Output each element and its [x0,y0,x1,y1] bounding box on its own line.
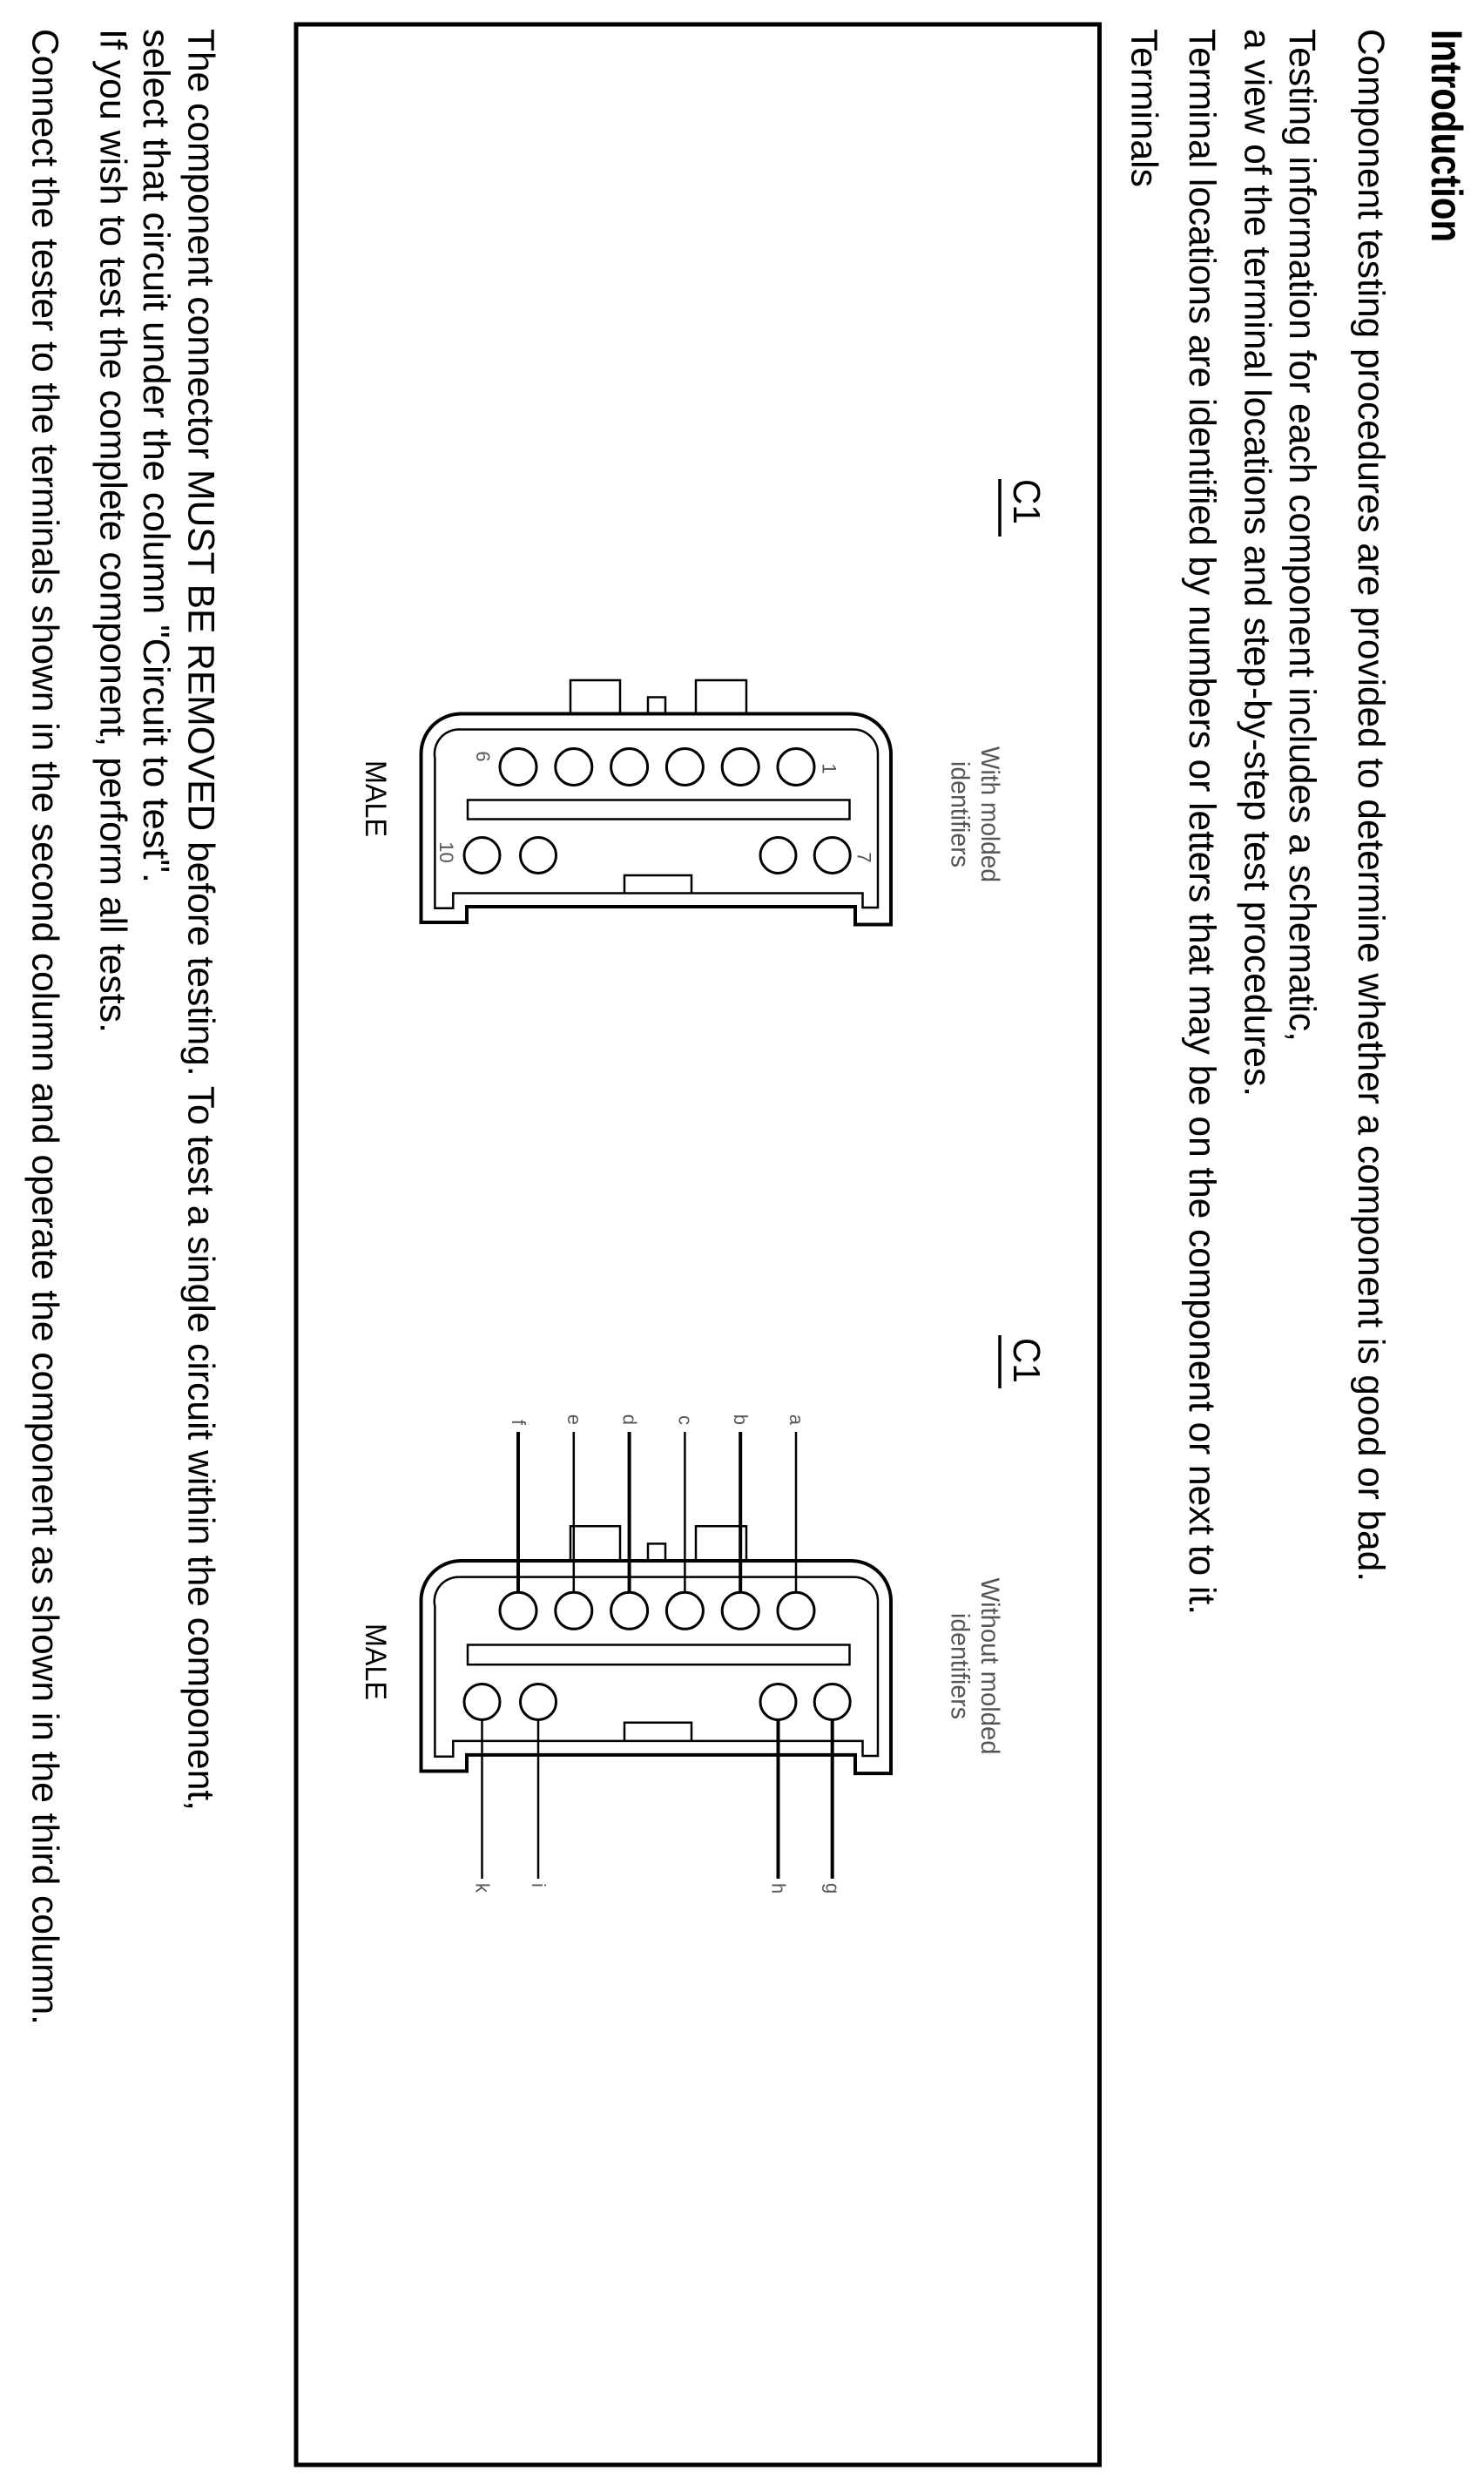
svg-text:The component connector MUST B: The component connector MUST BE REMOVED … [180,29,221,1811]
svg-text:MALE: MALE [359,760,392,837]
svg-text:C1: C1 [1005,1338,1048,1383]
svg-text:f: f [508,1420,530,1426]
svg-text:identifiers: identifiers [946,761,975,867]
svg-text:If you wish to test the comple: If you wish to test the complete compone… [92,29,133,1033]
svg-text:h: h [768,1883,790,1894]
svg-text:Testing information for each c: Testing information for each component i… [1281,29,1322,1042]
svg-text:7: 7 [853,852,875,862]
svg-text:6: 6 [472,751,494,761]
svg-text:Without molded: Without molded [975,1578,1004,1755]
svg-text:Introduction: Introduction [1422,30,1471,242]
svg-text:a view of the terminal locatio: a view of the terminal locations and ste… [1237,29,1278,1097]
svg-text:Component testing procedures a: Component testing procedures are provide… [1350,29,1391,1582]
svg-text:e: e [563,1414,585,1425]
svg-text:k: k [472,1883,494,1894]
svg-text:i: i [528,1883,550,1887]
svg-text:b: b [730,1414,752,1425]
svg-text:identifiers: identifiers [946,1613,975,1719]
svg-text:select that circuit under the: select that circuit under the column "Ci… [135,29,176,883]
svg-text:a: a [786,1414,807,1426]
svg-text:d: d [619,1414,641,1425]
svg-text:MALE: MALE [359,1624,392,1700]
svg-text:g: g [822,1883,844,1894]
svg-text:Terminal locations are identif: Terminal locations are identified by num… [1181,29,1222,1615]
svg-text:Connect the tester to the term: Connect the tester to the terminals show… [24,29,65,2025]
svg-text:With molded: With molded [975,746,1004,882]
svg-text:1: 1 [819,763,840,773]
svg-text:C1: C1 [1005,479,1048,524]
svg-text:c: c [674,1415,696,1425]
svg-text:Terminals: Terminals [1123,29,1164,187]
svg-text:10: 10 [435,841,457,862]
